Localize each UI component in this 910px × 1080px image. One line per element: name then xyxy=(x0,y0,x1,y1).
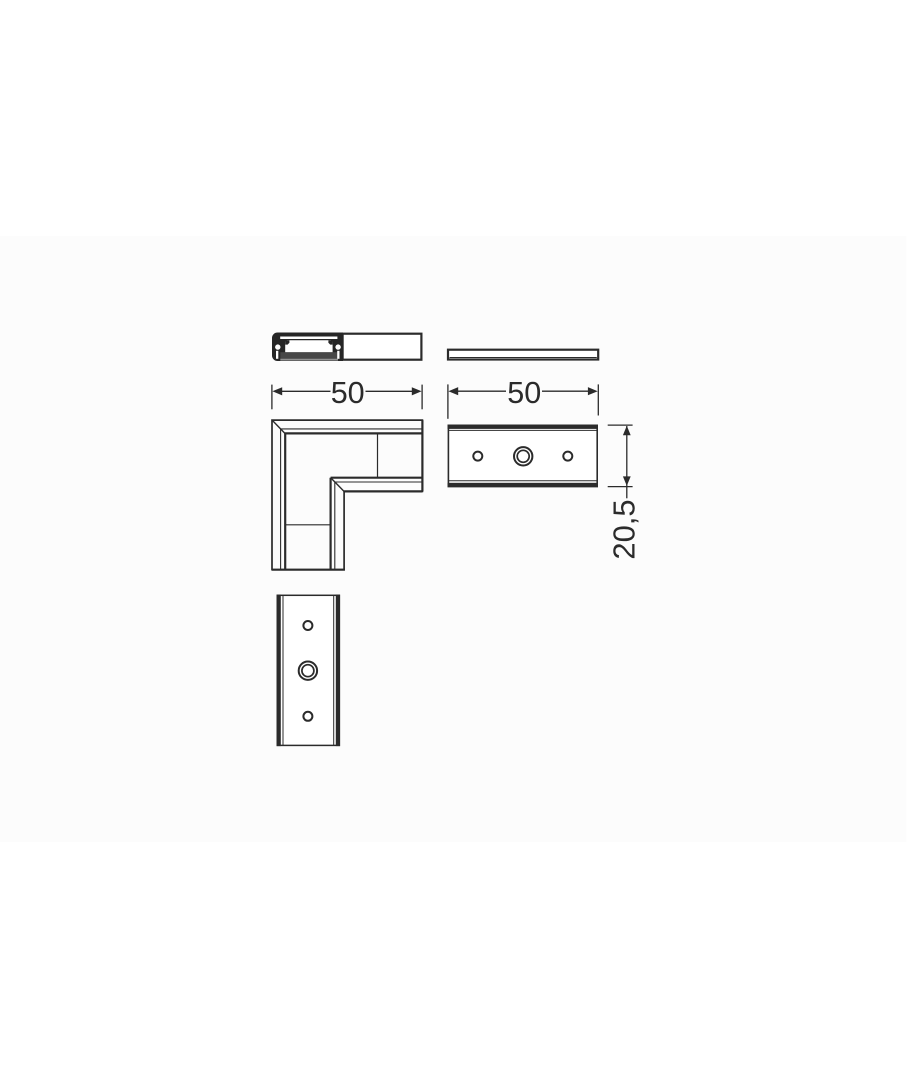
svg-text:50: 50 xyxy=(507,375,541,410)
svg-text:50: 50 xyxy=(331,375,365,410)
svg-text:20,5: 20,5 xyxy=(607,499,642,559)
